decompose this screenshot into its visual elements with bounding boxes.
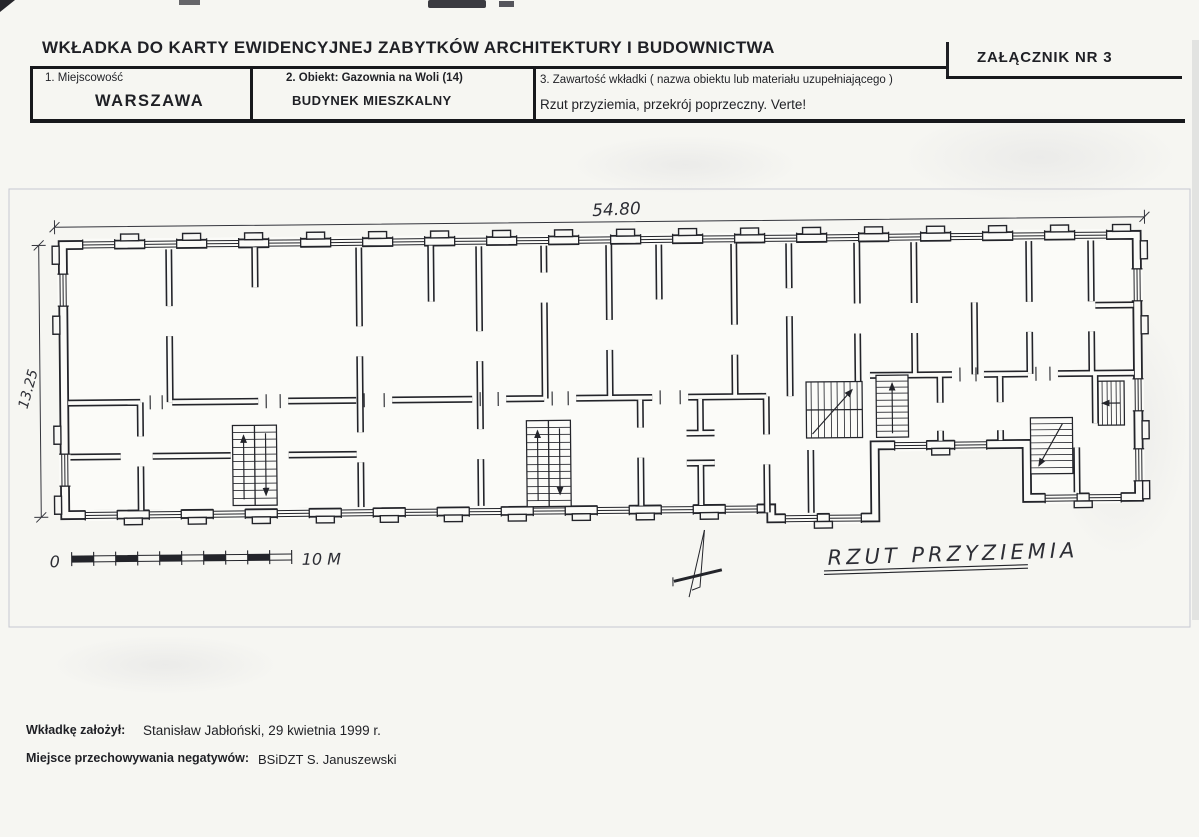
footer-negatives-label: Miejsce przechowywania negatywów: [26,751,249,765]
dimension-label-width: 54.80 [592,199,642,221]
staircase [1098,381,1124,425]
footer-created-value: Stanisław Jabłoński, 29 kwietnia 1999 r. [143,723,381,738]
staircase [876,375,909,437]
staircase [1030,417,1073,473]
dimension-label-height: 13.25 [16,368,42,411]
staircase [806,381,863,438]
scanned-record-card: WKŁADKA DO KARTY EWIDENCYJNEJ ZABYTKÓW A… [0,0,1199,837]
footer-negatives-value: BSiDZT S. Januszewski [258,752,396,767]
scale-bar: 0 10 M [50,549,342,571]
north-arrow-icon [672,530,722,597]
scale-end-label: 10 M [302,549,342,568]
exterior-wall-outer [59,231,1144,529]
staircase [232,425,277,505]
plan-title: RZUT PRZYZIEMIA [827,538,1078,570]
floor-plan-drawing: 54.80 13.25 [0,0,1199,837]
scale-zero-label: 0 [50,552,60,571]
plan-body: 54.80 13.25 [14,194,1153,604]
footer-created-label: Wkładkę założył: [26,723,125,737]
staircase [526,420,571,506]
